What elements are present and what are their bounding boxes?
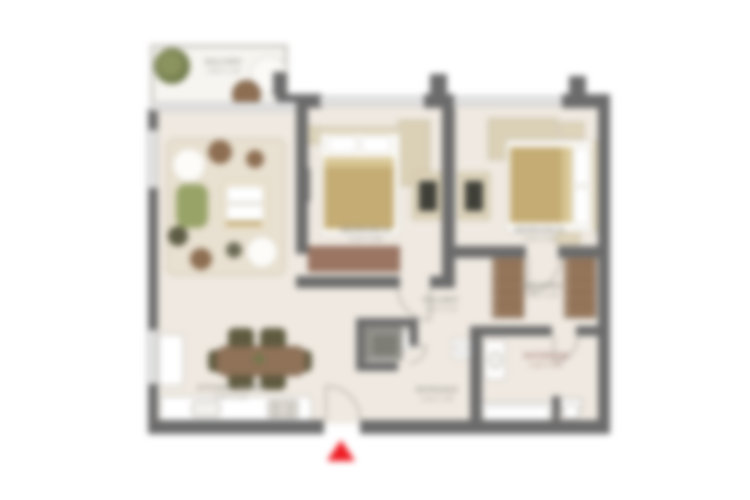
room-dims: 3.20 X 3.60 [350,236,383,245]
bedroom1-label: BEDROOM 01 3.20 X 3.60 [324,226,408,245]
room-dims: 1.50 X 3.10 [425,306,458,315]
room-name: DRESSING [522,282,562,292]
room-name: KITCHEN / DINING [197,384,265,394]
room-dims: 2.40 X 2.00 [530,362,563,371]
hallway-label: HALLWAY 1.50 X 3.10 [412,296,470,315]
room-name: BEDROOM 01 [341,226,391,236]
room-name: BATHROOM [524,352,568,362]
room-dims: 1.40 X 1.60 [421,396,454,405]
bedroom2-label: BEDROOM 02 3.40 X 3.60 [492,226,588,245]
balcony-label: BALCONY 3.60 X 1.40 [192,58,256,77]
powder-door-arc [409,346,426,363]
room-dims: 5.20 X 4.10 [215,394,248,403]
floor-plan-canvas: BALCONY 3.60 X 1.40 KITCHEN / DINING 5.2… [0,0,750,500]
entrance-arrow-icon [327,440,355,461]
room-name: BEDROOM 02 [515,226,565,236]
room-dims: 3.40 X 3.60 [524,236,557,245]
master-bathroom-label: BATHROOM 2.40 X 2.00 [500,352,592,371]
room-dims: 3.60 X 1.40 [208,68,241,77]
living-dining-label: KITCHEN / DINING 5.20 X 4.10 [196,384,266,403]
door-arcs-layer [0,0,750,500]
room-dims: 1.80 X 1.40 [526,292,559,301]
room-name: ENTRANCE [416,386,458,396]
floor-plan: BALCONY 3.60 X 1.40 KITCHEN / DINING 5.2… [0,0,750,500]
entrance-label: ENTRANCE 1.40 X 1.60 [410,386,464,405]
entrance-door-arc [326,386,360,420]
room-name: BALCONY [205,58,242,68]
room-name: HALLWAY [423,296,459,306]
dressing-label: DRESSING 1.80 X 1.40 [516,282,568,301]
